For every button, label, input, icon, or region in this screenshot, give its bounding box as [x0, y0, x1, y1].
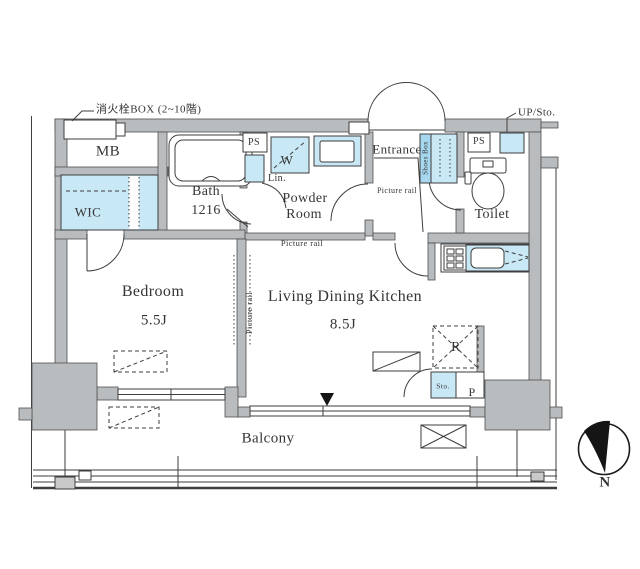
ac-unit-outline	[421, 425, 466, 448]
floorplan-drawing	[0, 0, 640, 569]
ps-label-1: PS	[248, 138, 260, 148]
floorplan: 消火栓BOX (2~10階) MB WIC Bath 1216 PS Lin. …	[0, 0, 640, 569]
wic-cabinet	[61, 175, 158, 230]
pipe-label: P	[468, 386, 475, 398]
room-label-bedroom: Bedroom	[122, 284, 184, 300]
toilet-icon	[465, 158, 506, 209]
washbasin-icon	[314, 136, 361, 166]
balcony-railing	[33, 430, 557, 489]
compass-north-label: N	[599, 476, 610, 491]
picture-rail-label-entrance: Picture rail	[377, 187, 417, 195]
fire-hydrant-label: 消火栓BOX (2~10階)	[96, 105, 201, 116]
room-label-mb: MB	[96, 145, 120, 160]
room-label-powder-1: Powder	[282, 192, 327, 206]
counter-table-outline	[373, 352, 420, 371]
room-size-bath: 1216	[191, 204, 221, 218]
storage-label: Sto.	[436, 382, 449, 390]
bathtub-icon	[169, 135, 252, 186]
compass-icon	[579, 421, 630, 475]
room-label-balcony: Balcony	[242, 432, 295, 447]
ps-label-2: PS	[473, 137, 485, 147]
bath-leader-line	[227, 209, 248, 227]
picture-rail-label-mid: Picture rail	[281, 239, 323, 248]
orientation-triangle-icon	[320, 393, 334, 406]
room-label-wic: WIC	[75, 206, 101, 219]
picture-rail-label-vertical: Picture rail	[245, 292, 254, 334]
up-storage-label: UP/Sto.	[518, 108, 555, 119]
room-label-bath: Bath	[192, 185, 220, 199]
room-size-ldk: 8.5J	[330, 318, 356, 333]
room-label-powder-2: Room	[286, 208, 322, 222]
room-label-ldk: Living Dining Kitchen	[268, 289, 422, 305]
shoes-box-label: Shoes Box	[423, 141, 430, 175]
linen-label: Lin.	[268, 174, 286, 184]
fridge-label: R	[451, 341, 461, 355]
furniture-outline-balcony	[109, 407, 159, 428]
room-size-bedroom: 5.5J	[141, 314, 167, 329]
room-label-entrance: Entrance	[372, 143, 421, 156]
wall-vent-box	[349, 122, 369, 134]
washer-label: W	[281, 154, 294, 167]
furniture-outline-bedroom	[114, 351, 167, 372]
room-label-toilet: Toilet	[475, 208, 510, 222]
stove-icon	[444, 246, 466, 270]
linen-cabinet	[245, 155, 264, 182]
